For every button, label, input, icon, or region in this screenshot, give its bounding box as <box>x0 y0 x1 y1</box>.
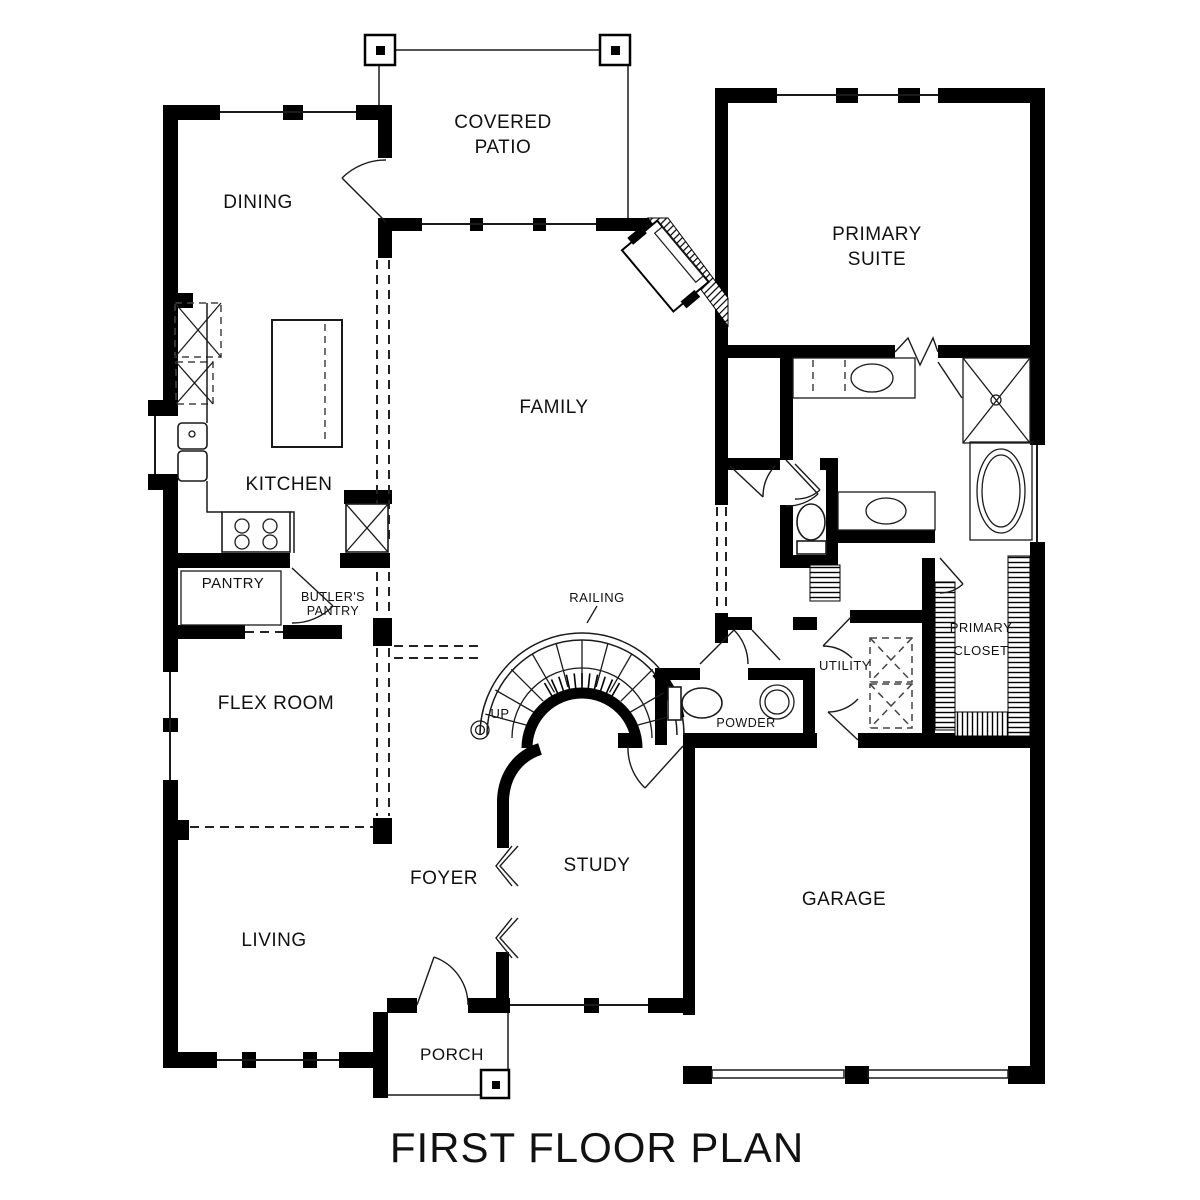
linen-shelves <box>810 565 840 601</box>
toilet-tank <box>668 687 681 720</box>
family-label: FAMILY <box>519 397 588 418</box>
porch-post <box>481 1070 509 1098</box>
corner-fireplace <box>618 216 728 326</box>
utility-fixtures <box>870 638 912 728</box>
patio-outline <box>379 50 628 218</box>
kitchen-island <box>272 320 342 447</box>
foyer-label: FOYER <box>410 868 478 889</box>
primary-closet-label-line2: CLOSET <box>953 643 1008 658</box>
railing-leader <box>587 606 597 623</box>
garage-label: GARAGE <box>802 889 886 910</box>
toilet-bowl <box>682 688 722 718</box>
curved-staircase <box>471 606 684 748</box>
doors <box>292 160 963 1005</box>
up-label: UP <box>490 706 509 721</box>
shower <box>938 358 1030 443</box>
primary-suite-label-line2: SUITE <box>848 249 906 270</box>
porch-label: PORCH <box>420 1045 484 1064</box>
patio-post-right <box>600 35 630 65</box>
study-label: STUDY <box>564 855 631 876</box>
dining-label: DINING <box>223 192 293 213</box>
plan-title: FIRST FLOOR PLAN <box>390 1124 804 1171</box>
covered-patio-label-line1: COVERED <box>454 112 551 133</box>
kitchen-label: KITCHEN <box>246 474 333 495</box>
butlers-cabinet <box>346 504 388 552</box>
primary-suite-label-line1: PRIMARY <box>832 224 922 245</box>
wc-door <box>795 464 820 499</box>
railing-label: RAILING <box>569 590 625 605</box>
front-door <box>417 957 468 1005</box>
refrigerator <box>175 303 221 357</box>
powder-fixtures <box>668 685 794 720</box>
bathtub <box>970 442 1032 540</box>
powder-label: POWDER <box>716 716 775 730</box>
garage-utility-door <box>828 699 858 740</box>
suite-entry-break <box>895 338 938 365</box>
room-labels: DINING COVERED PATIO PRIMARY SUITE FAMIL… <box>202 112 1012 1064</box>
kitchen-sink <box>178 423 207 481</box>
floor-plan-canvas: DINING COVERED PATIO PRIMARY SUITE FAMIL… <box>0 0 1200 1200</box>
study-door <box>628 746 683 788</box>
vanity-top <box>793 358 915 398</box>
cooktop <box>222 512 290 552</box>
butlers-pantry-label-line1: BUTLER'S <box>301 590 365 604</box>
stair-hall-door <box>752 630 780 660</box>
primary-closet-label-line1: PRIMARY <box>950 620 1013 635</box>
vanity-bottom <box>838 492 935 530</box>
water-closet-toilet <box>797 504 826 554</box>
flex-room-label: FLEX ROOM <box>218 693 334 714</box>
butlers-pantry-label-line2: PANTRY <box>307 604 360 618</box>
first-floor-plan: DINING COVERED PATIO PRIMARY SUITE FAMIL… <box>0 0 1200 1200</box>
utility-label: UTILITY <box>819 658 871 673</box>
living-label: LIVING <box>241 930 306 951</box>
patio-post-left <box>365 35 395 65</box>
foyer-arch-opening <box>496 846 518 958</box>
utility-door <box>823 616 852 658</box>
covered-patio-label-line2: PATIO <box>475 137 532 158</box>
pantry-label: PANTRY <box>202 575 264 592</box>
hall-door <box>730 466 775 497</box>
dining-patio-door <box>342 160 386 222</box>
